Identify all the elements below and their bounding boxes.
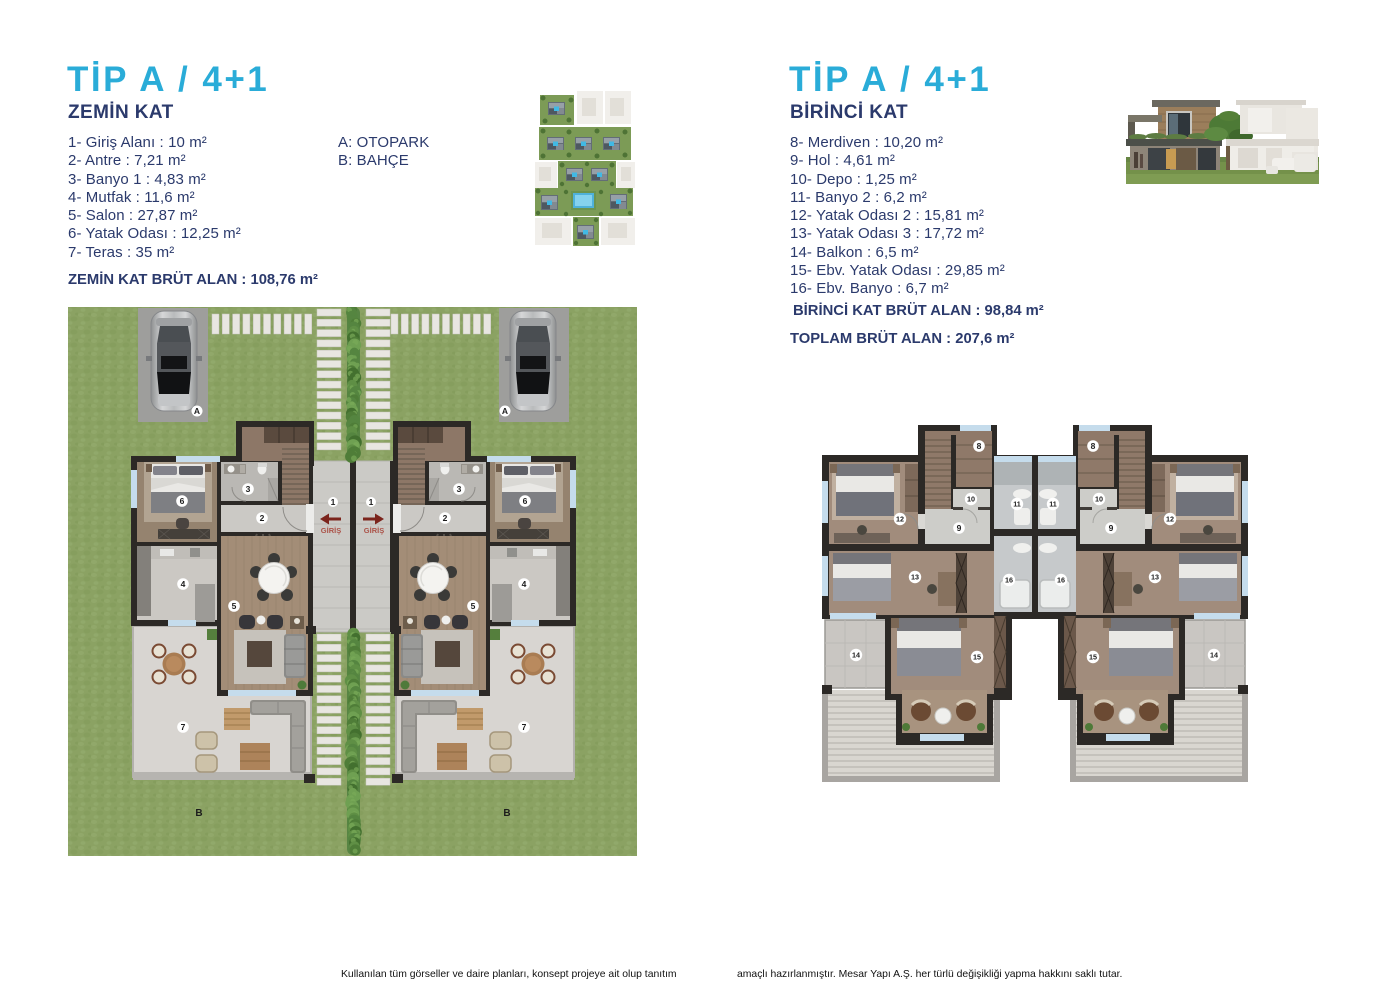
svg-text:15: 15 — [973, 653, 981, 662]
svg-text:8: 8 — [977, 441, 982, 451]
svg-text:6: 6 — [523, 496, 528, 506]
svg-text:5: 5 — [232, 601, 237, 611]
svg-text:6: 6 — [180, 496, 185, 506]
svg-text:2: 2 — [260, 513, 265, 523]
svg-text:1: 1 — [369, 497, 374, 507]
svg-text:3: 3 — [246, 484, 251, 494]
svg-text:A: A — [194, 406, 200, 416]
svg-text:3: 3 — [457, 484, 462, 494]
svg-text:16: 16 — [1005, 576, 1013, 585]
svg-text:2: 2 — [443, 513, 448, 523]
svg-text:A: A — [502, 406, 508, 416]
svg-text:1: 1 — [331, 497, 336, 507]
svg-text:14: 14 — [1210, 651, 1218, 660]
svg-text:7: 7 — [522, 722, 527, 732]
svg-text:16: 16 — [1057, 576, 1065, 585]
svg-text:10: 10 — [1095, 495, 1103, 504]
svg-text:GİRİŞ: GİRİŞ — [321, 526, 341, 535]
svg-text:9: 9 — [1109, 523, 1114, 533]
svg-text:7: 7 — [181, 722, 186, 732]
svg-text:12: 12 — [896, 515, 904, 524]
svg-text:B: B — [195, 808, 202, 819]
svg-text:15: 15 — [1089, 653, 1097, 662]
svg-text:B: B — [503, 808, 510, 819]
svg-text:10: 10 — [967, 495, 975, 504]
svg-text:5: 5 — [471, 601, 476, 611]
svg-text:13: 13 — [1151, 573, 1159, 582]
svg-text:12: 12 — [1166, 515, 1174, 524]
svg-text:9: 9 — [957, 523, 962, 533]
svg-text:11: 11 — [1049, 500, 1057, 509]
svg-text:4: 4 — [181, 579, 186, 589]
svg-text:14: 14 — [852, 651, 860, 660]
svg-text:8: 8 — [1091, 441, 1096, 451]
svg-text:4: 4 — [522, 579, 527, 589]
svg-text:GİRİŞ: GİRİŞ — [364, 526, 384, 535]
svg-text:11: 11 — [1013, 500, 1021, 509]
svg-text:13: 13 — [911, 573, 919, 582]
